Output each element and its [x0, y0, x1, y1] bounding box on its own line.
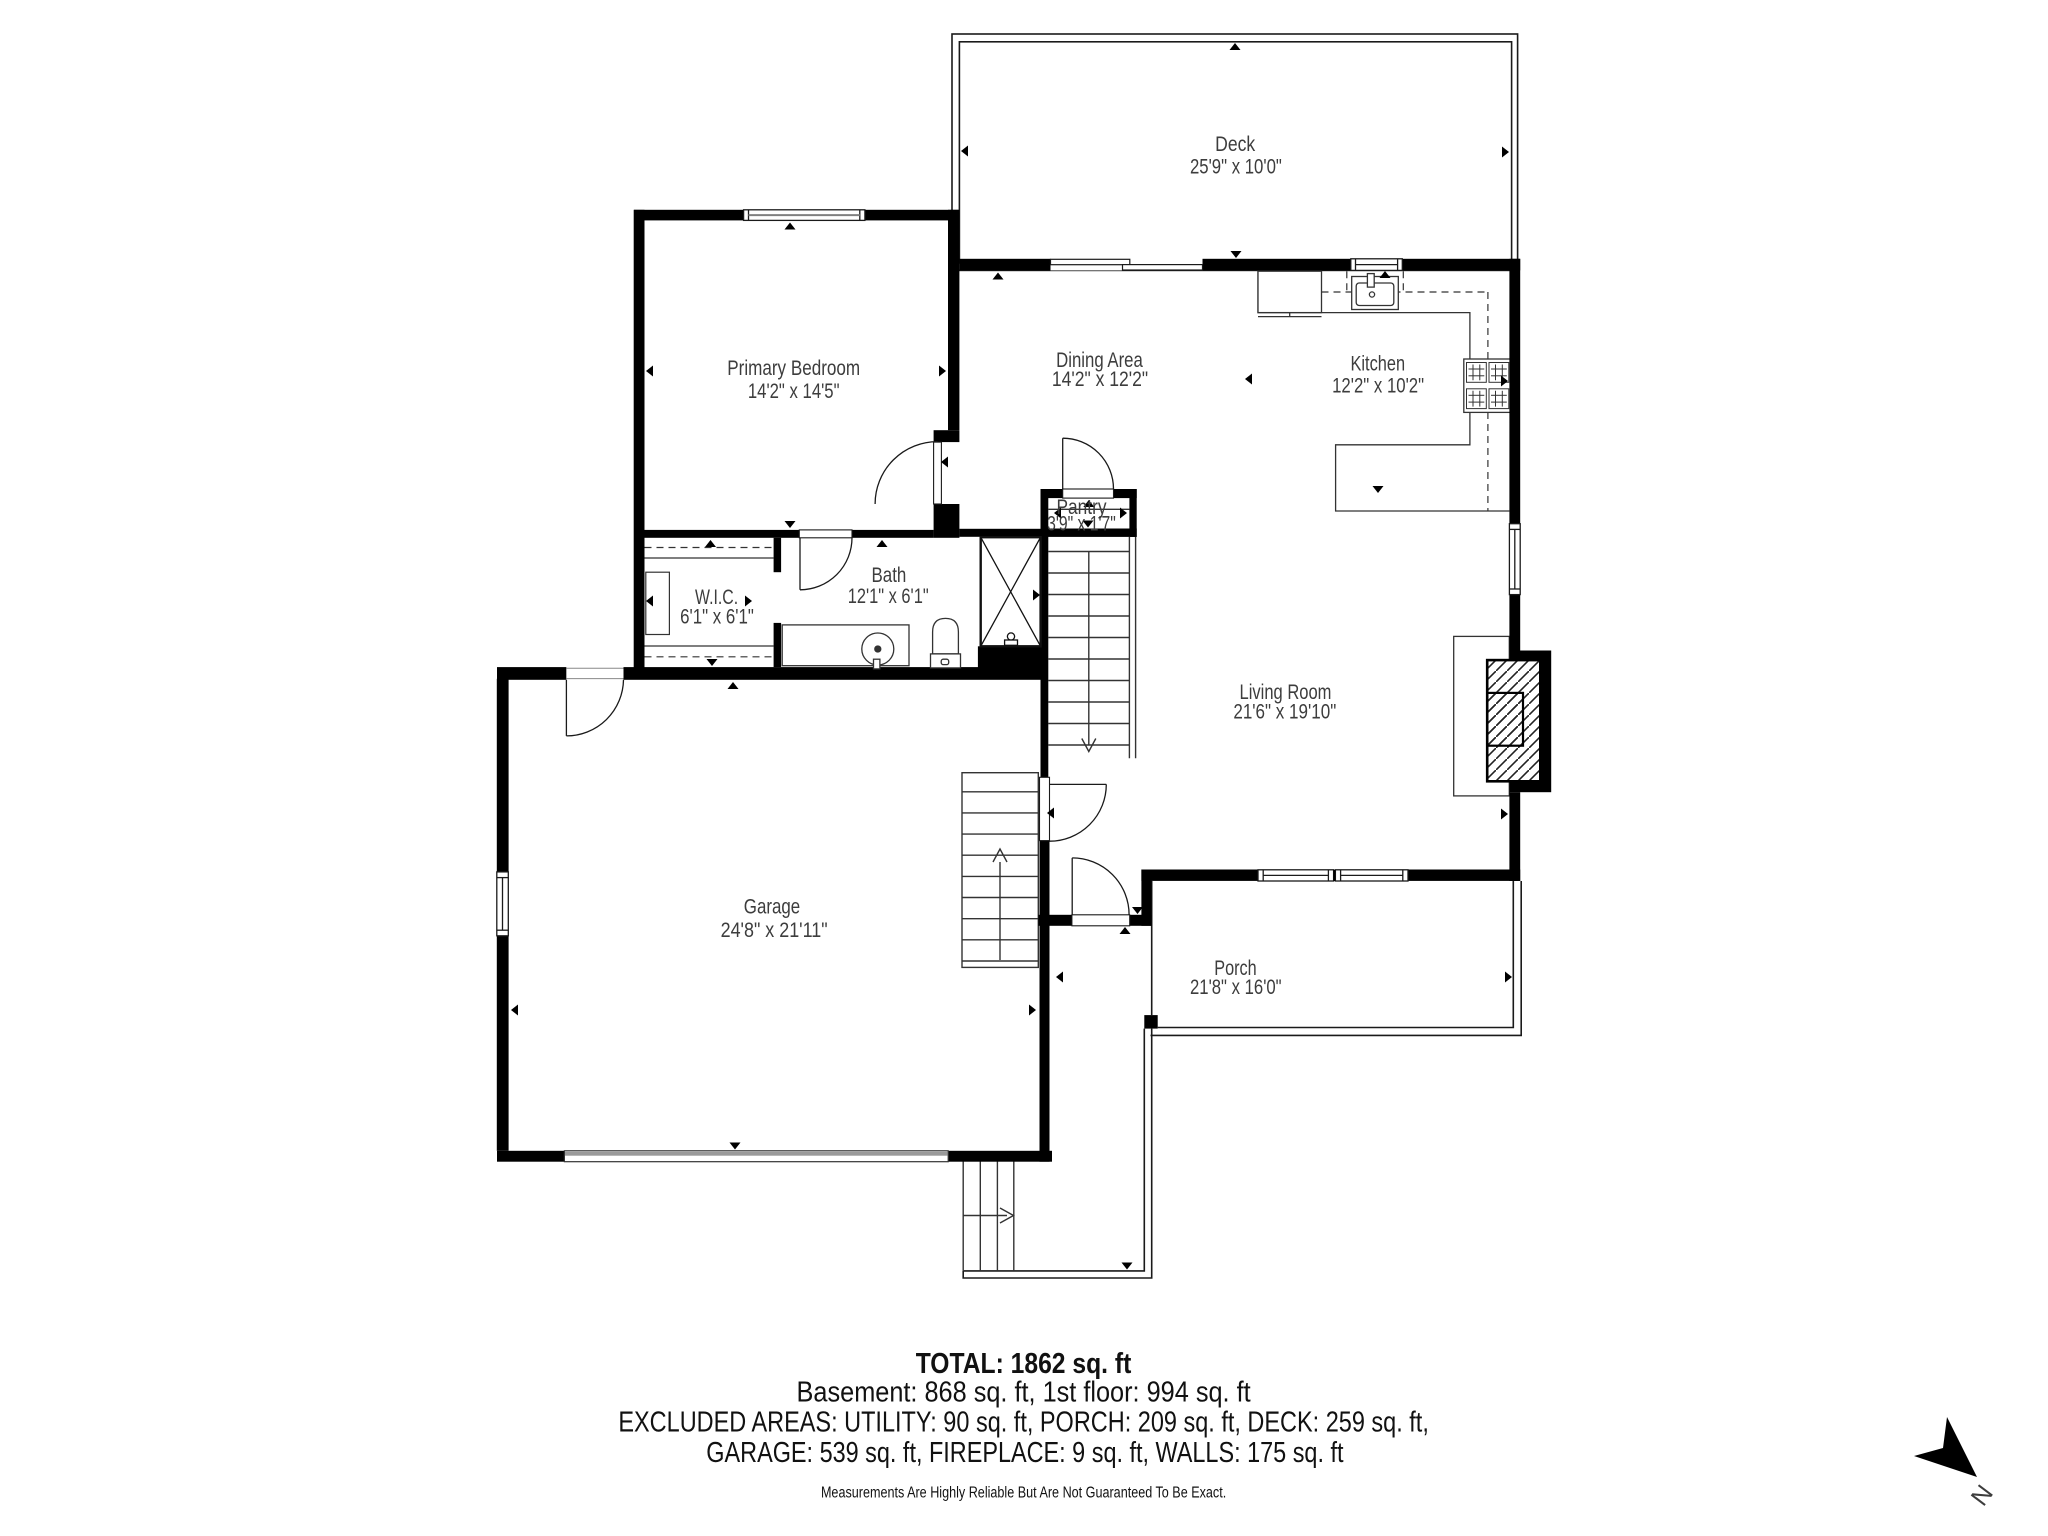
svg-text:12'1" x 6'1": 12'1" x 6'1": [848, 585, 929, 608]
svg-text:Primary Bedroom: Primary Bedroom: [727, 357, 860, 380]
svg-text:3'9" x 1'7": 3'9" x 1'7": [1047, 513, 1116, 536]
svg-text:Measurements Are Highly Reliab: Measurements Are Highly Reliable But Are…: [821, 1484, 1226, 1501]
svg-text:25'9" x 10'0": 25'9" x 10'0": [1190, 155, 1282, 178]
svg-text:12'2" x 10'2": 12'2" x 10'2": [1332, 374, 1424, 397]
svg-text:24'8" x 21'11": 24'8" x 21'11": [721, 919, 828, 942]
svg-text:Deck: Deck: [1215, 133, 1256, 156]
svg-text:21'6" x 19'10": 21'6" x 19'10": [1233, 701, 1336, 724]
svg-text:Kitchen: Kitchen: [1351, 353, 1406, 376]
svg-text:Garage: Garage: [744, 896, 800, 919]
svg-text:EXCLUDED AREAS: UTILITY: 90 sq: EXCLUDED AREAS: UTILITY: 90 sq. ft, PORC…: [618, 1407, 1429, 1439]
svg-text:Bath: Bath: [872, 564, 907, 587]
svg-text:Basement: 868 sq. ft, 1st floo: Basement: 868 sq. ft, 1st floor: 994 sq.…: [797, 1377, 1251, 1409]
svg-text:GARAGE: 539 sq. ft, FIREPLACE:: GARAGE: 539 sq. ft, FIREPLACE: 9 sq. ft,…: [706, 1437, 1343, 1469]
svg-text:TOTAL: 1862 sq. ft: TOTAL: 1862 sq. ft: [916, 1348, 1132, 1380]
svg-text:6'1" x 6'1": 6'1" x 6'1": [680, 605, 754, 628]
svg-text:14'2" x 12'2": 14'2" x 12'2": [1052, 368, 1148, 391]
svg-text:14'2" x 14'5": 14'2" x 14'5": [748, 380, 840, 403]
svg-text:21'8" x 16'0": 21'8" x 16'0": [1190, 976, 1282, 999]
